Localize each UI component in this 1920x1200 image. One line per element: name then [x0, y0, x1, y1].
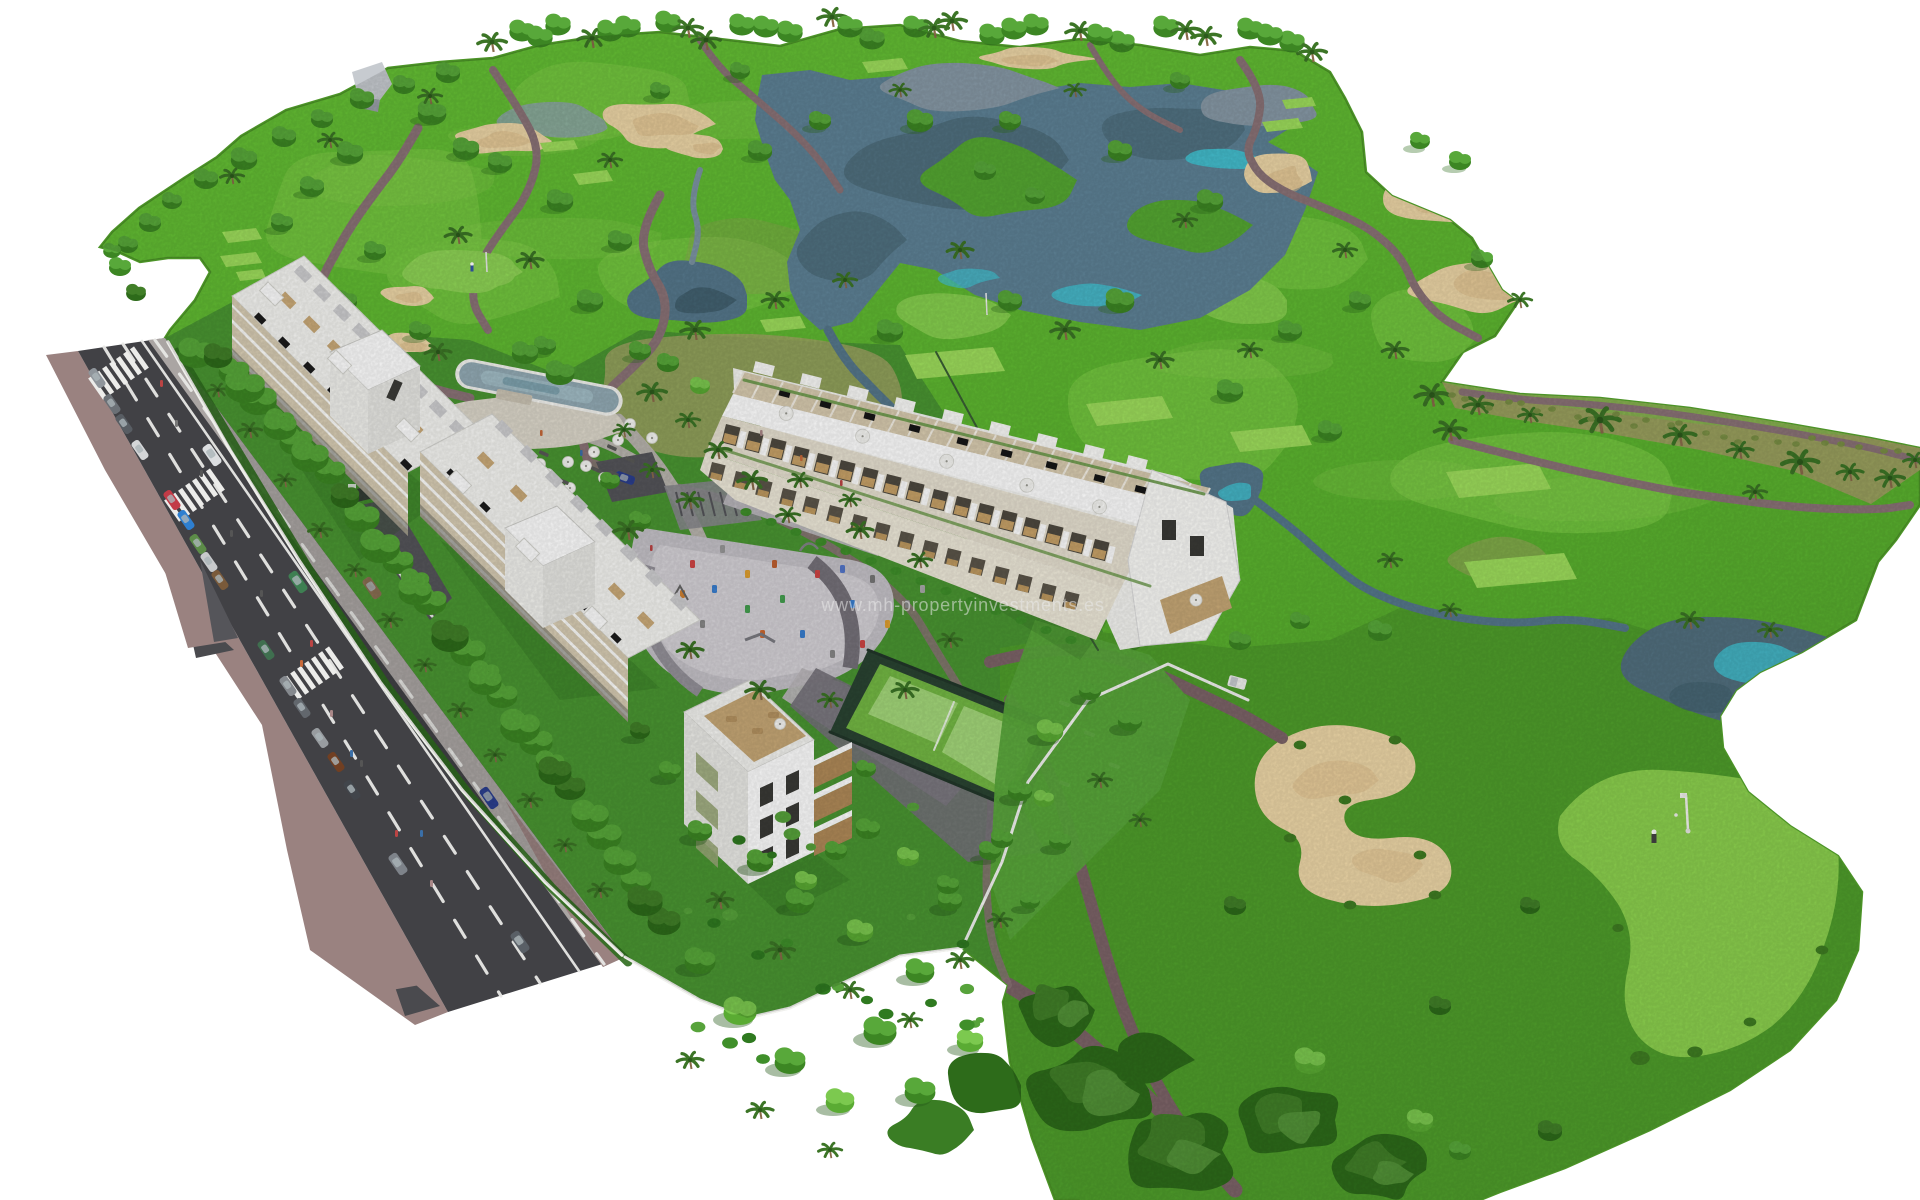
svg-text:www.mh-propertyinvestments.es: www.mh-propertyinvestments.es: [820, 595, 1104, 615]
